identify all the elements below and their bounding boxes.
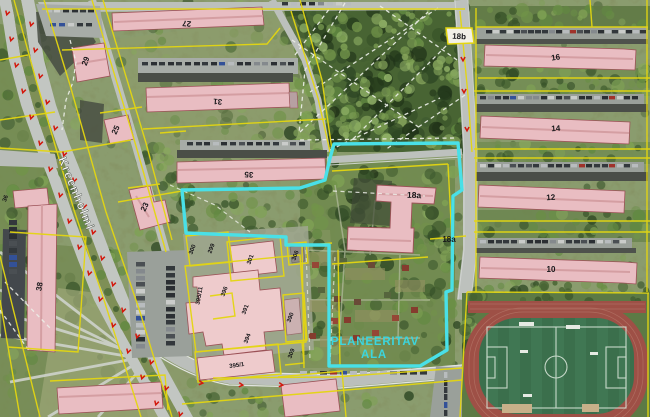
svg-text:18b: 18b (452, 32, 466, 42)
svg-text:12: 12 (546, 193, 556, 203)
svg-text:35: 35 (244, 170, 254, 179)
svg-text:ALA: ALA (361, 349, 387, 361)
svg-text:18a: 18a (407, 190, 422, 200)
svg-text:27: 27 (181, 19, 191, 29)
svg-text:16: 16 (551, 52, 562, 62)
svg-text:14: 14 (551, 124, 561, 134)
svg-text:18a: 18a (442, 235, 456, 244)
svg-text:31: 31 (212, 97, 222, 107)
svg-text:PLANEERITAV: PLANEERITAV (331, 336, 419, 348)
svg-text:10: 10 (547, 265, 556, 274)
